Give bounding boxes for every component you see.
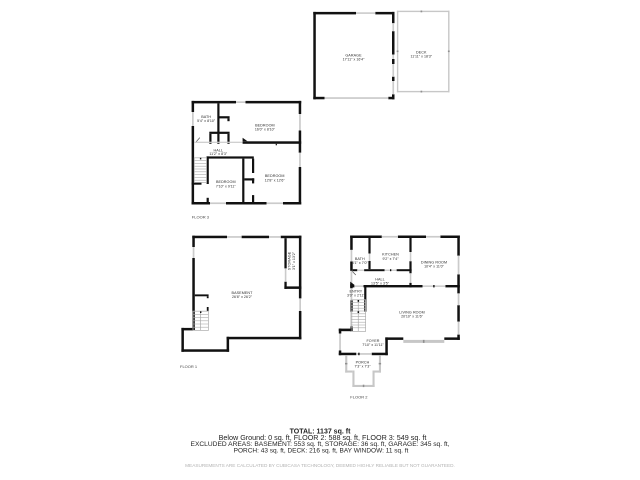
svg-text:20'10" x 11'6": 20'10" x 11'6" bbox=[401, 315, 424, 319]
svg-text:9'2" x 7'4": 9'2" x 7'4" bbox=[382, 257, 399, 261]
svg-text:FLOOR 3: FLOOR 3 bbox=[192, 215, 210, 220]
svg-text:BEDROOM: BEDROOM bbox=[265, 174, 285, 178]
svg-text:11'2" x 8'3": 11'2" x 8'3" bbox=[209, 152, 228, 156]
svg-text:11'11" x 18'3": 11'11" x 18'3" bbox=[410, 54, 432, 58]
svg-text:3'0" x 2'11": 3'0" x 2'11" bbox=[347, 293, 366, 297]
svg-text:4'1" x 7'0": 4'1" x 7'0" bbox=[352, 261, 369, 265]
svg-text:5'4" x 8'10": 5'4" x 8'10" bbox=[197, 119, 216, 123]
svg-text:16'0" x 8'10": 16'0" x 8'10" bbox=[255, 127, 276, 131]
svg-text:STORAGE: STORAGE bbox=[287, 251, 291, 270]
svg-text:7'10" x 11'11": 7'10" x 11'11" bbox=[362, 343, 384, 347]
svg-text:MEASUREMENTS ARE CALCULATED BY: MEASUREMENTS ARE CALCULATED BY CUBICASA … bbox=[185, 463, 455, 468]
svg-text:10'4" x 11'0": 10'4" x 11'0" bbox=[424, 265, 445, 269]
svg-text:7'3" x 7'3": 7'3" x 7'3" bbox=[354, 364, 371, 368]
svg-text:26'8" x 26'2": 26'8" x 26'2" bbox=[232, 295, 253, 299]
svg-text:12'8" x 12'6": 12'8" x 12'6" bbox=[265, 178, 286, 182]
svg-text:17'11" x 16'4": 17'11" x 16'4" bbox=[343, 58, 366, 62]
svg-text:3'1" x 13'2": 3'1" x 13'2" bbox=[292, 251, 296, 270]
svg-text:FLOOR 1: FLOOR 1 bbox=[180, 364, 198, 369]
svg-text:13'5" x 3'5": 13'5" x 3'5" bbox=[371, 281, 390, 285]
svg-text:7'10" x 9'11": 7'10" x 9'11" bbox=[216, 185, 237, 189]
svg-text:BEDROOM: BEDROOM bbox=[216, 180, 236, 184]
svg-text:PORCH: 43 sq. ft, DECK: 216 sq: PORCH: 43 sq. ft, DECK: 216 sq. ft, BAY … bbox=[234, 447, 409, 454]
svg-text:FLOOR 2: FLOOR 2 bbox=[350, 395, 368, 400]
